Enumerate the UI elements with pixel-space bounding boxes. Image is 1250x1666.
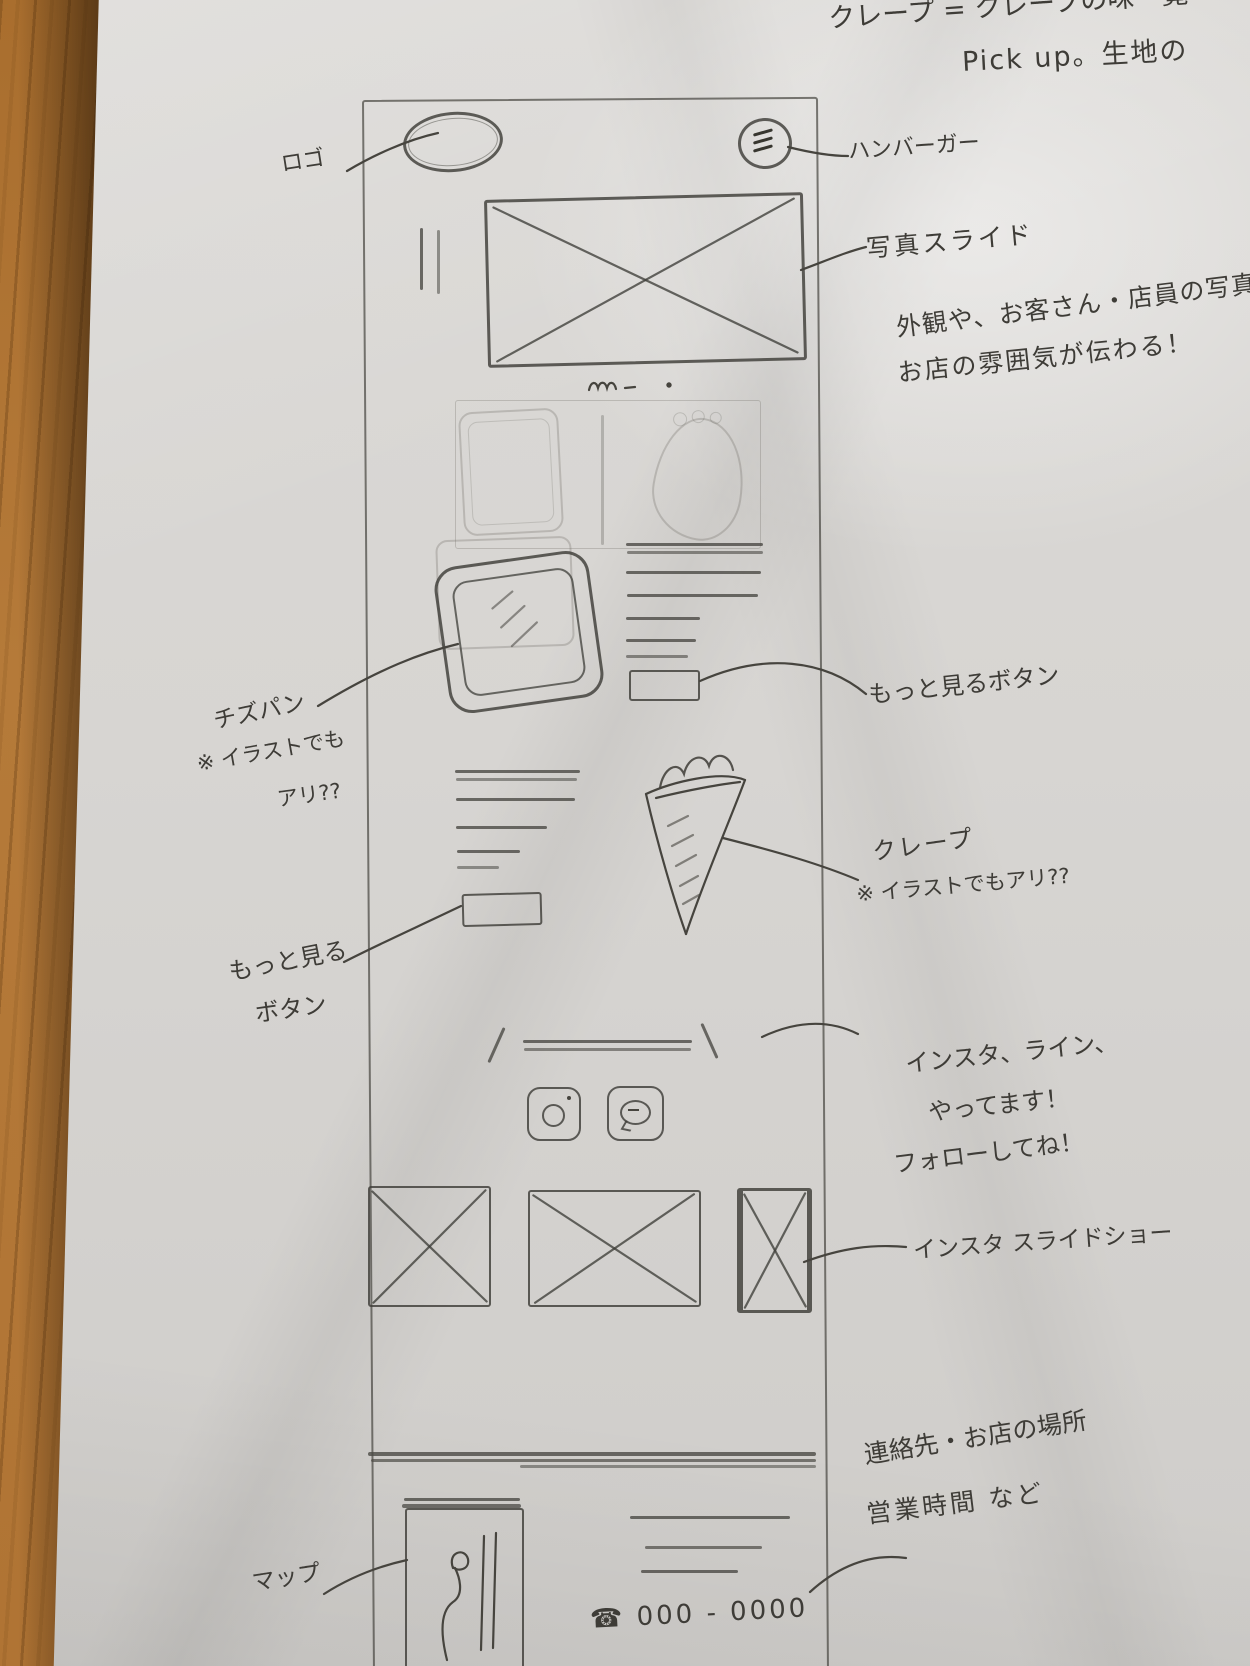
photo-of-wireframe-sketch: クレープ = クレープの味一覧 Pick up。生地の ロゴ ハンバーガー 写真… <box>0 0 1250 1666</box>
annotation-connector-lines <box>0 0 1250 1666</box>
